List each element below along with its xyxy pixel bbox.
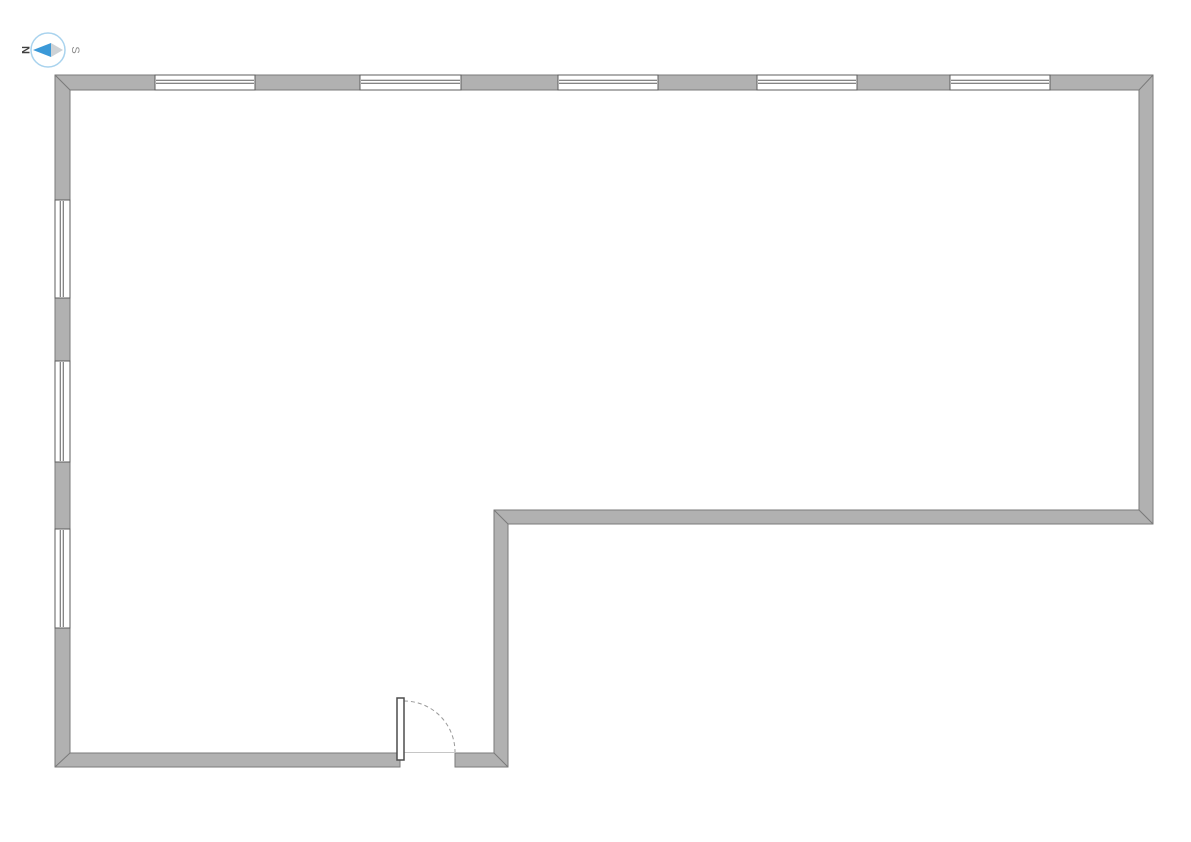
- window-frame: [155, 75, 255, 90]
- windows-group: [55, 75, 1050, 628]
- window-north-4[interactable]: [757, 75, 857, 90]
- door-group: [397, 698, 455, 760]
- window-frame: [950, 75, 1050, 90]
- window-frame: [360, 75, 461, 90]
- door-leaf[interactable]: [397, 698, 404, 760]
- window-frame: [558, 75, 658, 90]
- window-north-2[interactable]: [360, 75, 461, 90]
- walls-group: [55, 75, 1153, 767]
- window-frame: [757, 75, 857, 90]
- floor-plan-canvas: N S: [0, 0, 1191, 842]
- floor-plan-svg: N S: [0, 0, 1191, 842]
- compass-south-label: S: [69, 46, 81, 53]
- wall-structure[interactable]: [55, 75, 1153, 767]
- window-west-1[interactable]: [55, 200, 70, 298]
- window-north-3[interactable]: [558, 75, 658, 90]
- window-west-3[interactable]: [55, 529, 70, 628]
- door-swing-arc: [404, 701, 455, 752]
- window-north-5[interactable]: [950, 75, 1050, 90]
- compass-needle: [31, 33, 65, 67]
- window-frame: [55, 361, 70, 462]
- window-north-1[interactable]: [155, 75, 255, 90]
- compass-rose: N S: [19, 33, 81, 67]
- window-west-2[interactable]: [55, 361, 70, 462]
- window-frame: [55, 529, 70, 628]
- window-frame: [55, 200, 70, 298]
- compass-north-label: N: [19, 46, 31, 54]
